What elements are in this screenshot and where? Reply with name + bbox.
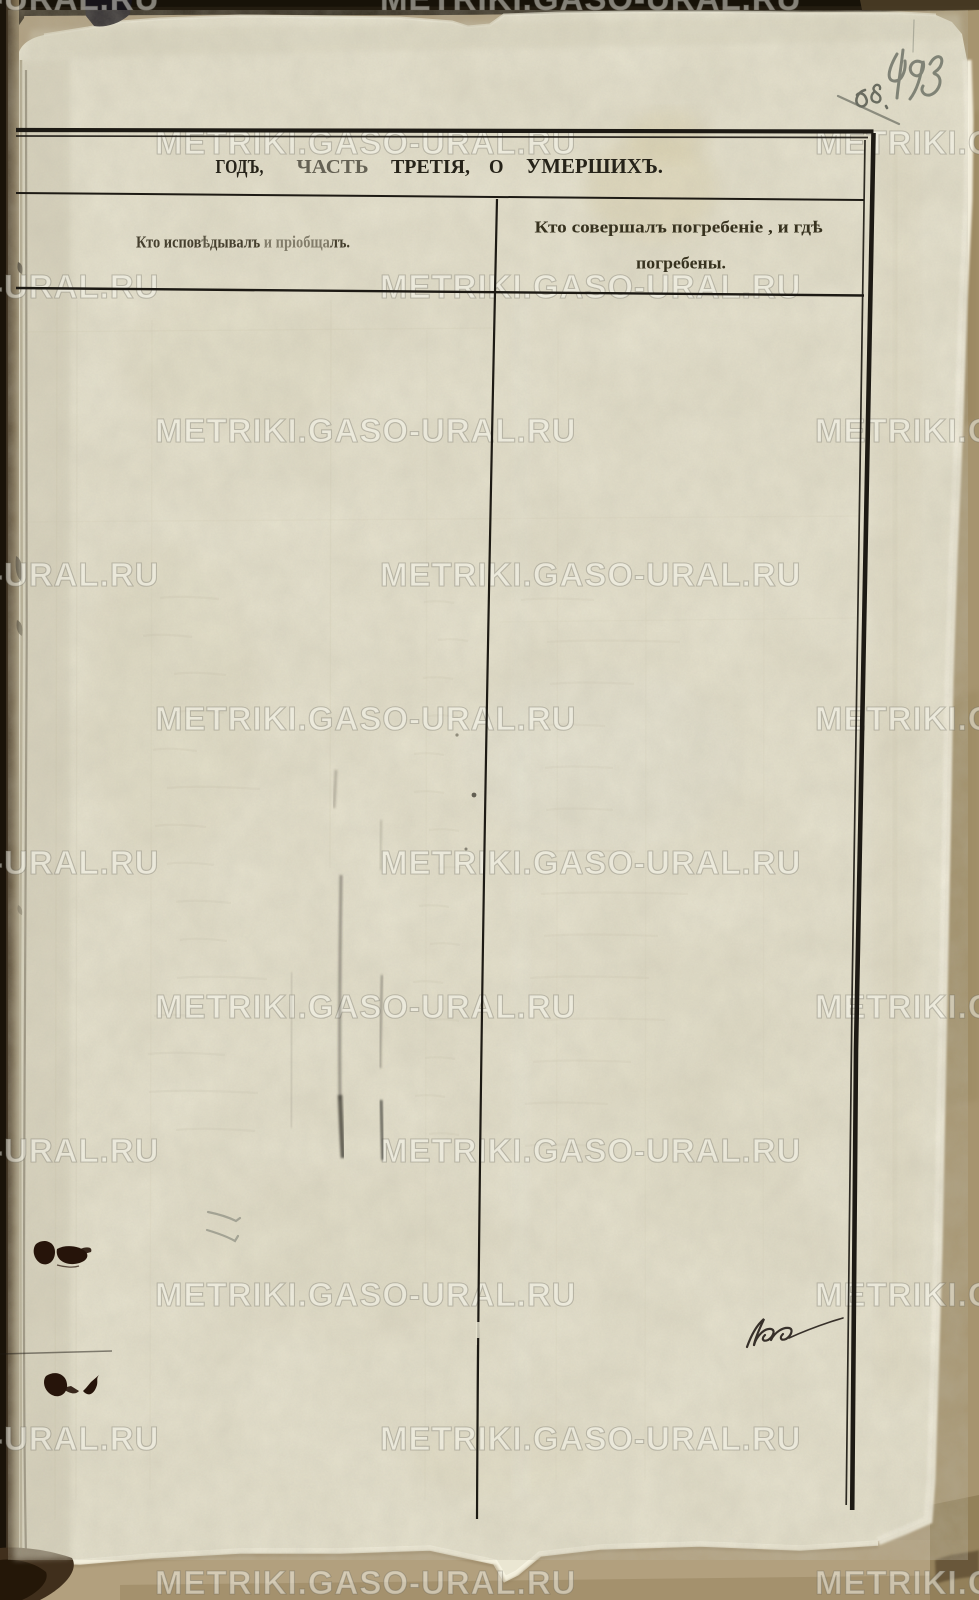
svg-text:METRIKI.GASO-URAL.RU: METRIKI.GASO-URAL.RU [380, 556, 801, 593]
svg-text:О: О [489, 156, 504, 178]
svg-text:METRIKI.GASO-URAL.RU: METRIKI.GASO-URAL.RU [380, 1420, 801, 1457]
svg-text:METRIKI.GASO-URAL.RU: METRIKI.GASO-URAL.RU [380, 0, 801, 17]
svg-text:METRIKI.GASO-URAL.RU: METRIKI.GASO-URAL.RU [155, 412, 576, 449]
svg-text:METRIKI.GASO-URAL.RU: METRIKI.GASO-URAL.RU [815, 412, 979, 449]
svg-text:ГОДЪ,: ГОДЪ, [216, 156, 264, 178]
svg-text:METRIKI.GASO-URAL.RU: METRIKI.GASO-URAL.RU [155, 700, 576, 737]
svg-text:ЧАСТЬ: ЧАСТЬ [297, 156, 369, 178]
svg-text:METRIKI.GASO-URAL.RU: METRIKI.GASO-URAL.RU [155, 988, 576, 1025]
svg-text:METRIKI.GASO-URAL.RU: METRIKI.GASO-URAL.RU [0, 268, 159, 305]
svg-text:METRIKI.GASO-URAL.RU: METRIKI.GASO-URAL.RU [0, 1132, 159, 1169]
svg-text:погребены.: погребены. [636, 254, 726, 273]
svg-text:METRIKI.GASO-URAL.RU: METRIKI.GASO-URAL.RU [380, 268, 801, 305]
svg-text:METRIKI.GASO-URAL.RU: METRIKI.GASO-URAL.RU [380, 844, 801, 881]
svg-text:METRIKI.GASO-URAL.RU: METRIKI.GASO-URAL.RU [0, 1420, 159, 1457]
svg-text:Кто совершалъ погребеніе , и г: Кто совершалъ погребеніе , и гдѣ [535, 218, 823, 237]
svg-text:METRIKI.GASO-URAL.RU: METRIKI.GASO-URAL.RU [155, 1276, 576, 1313]
svg-text:METRIKI.GASO-URAL.RU: METRIKI.GASO-URAL.RU [815, 1276, 979, 1313]
svg-text:METRIKI.GASO-URAL.RU: METRIKI.GASO-URAL.RU [815, 988, 979, 1025]
svg-text:METRIKI.GASO-URAL.RU: METRIKI.GASO-URAL.RU [380, 1132, 801, 1169]
svg-text:Кто исповѣдывалъ и пріобщалъ.: Кто исповѣдывалъ и пріобщалъ. [136, 233, 350, 252]
svg-text:METRIKI.GASO-URAL.RU: METRIKI.GASO-URAL.RU [815, 1564, 979, 1600]
svg-text:УМЕРШИХЪ.: УМЕРШИХЪ. [526, 154, 663, 178]
svg-text:ТРЕТІЯ,: ТРЕТІЯ, [391, 156, 470, 178]
svg-text:METRIKI.GASO-URAL.RU: METRIKI.GASO-URAL.RU [0, 844, 159, 881]
svg-text:METRIKI.GASO-URAL.RU: METRIKI.GASO-URAL.RU [815, 700, 979, 737]
svg-text:METRIKI.GASO-URAL.RU: METRIKI.GASO-URAL.RU [0, 556, 159, 593]
svg-text:METRIKI.GASO-URAL.RU: METRIKI.GASO-URAL.RU [0, 0, 159, 17]
svg-text:METRIKI.GASO-URAL.RU: METRIKI.GASO-URAL.RU [155, 1564, 576, 1600]
